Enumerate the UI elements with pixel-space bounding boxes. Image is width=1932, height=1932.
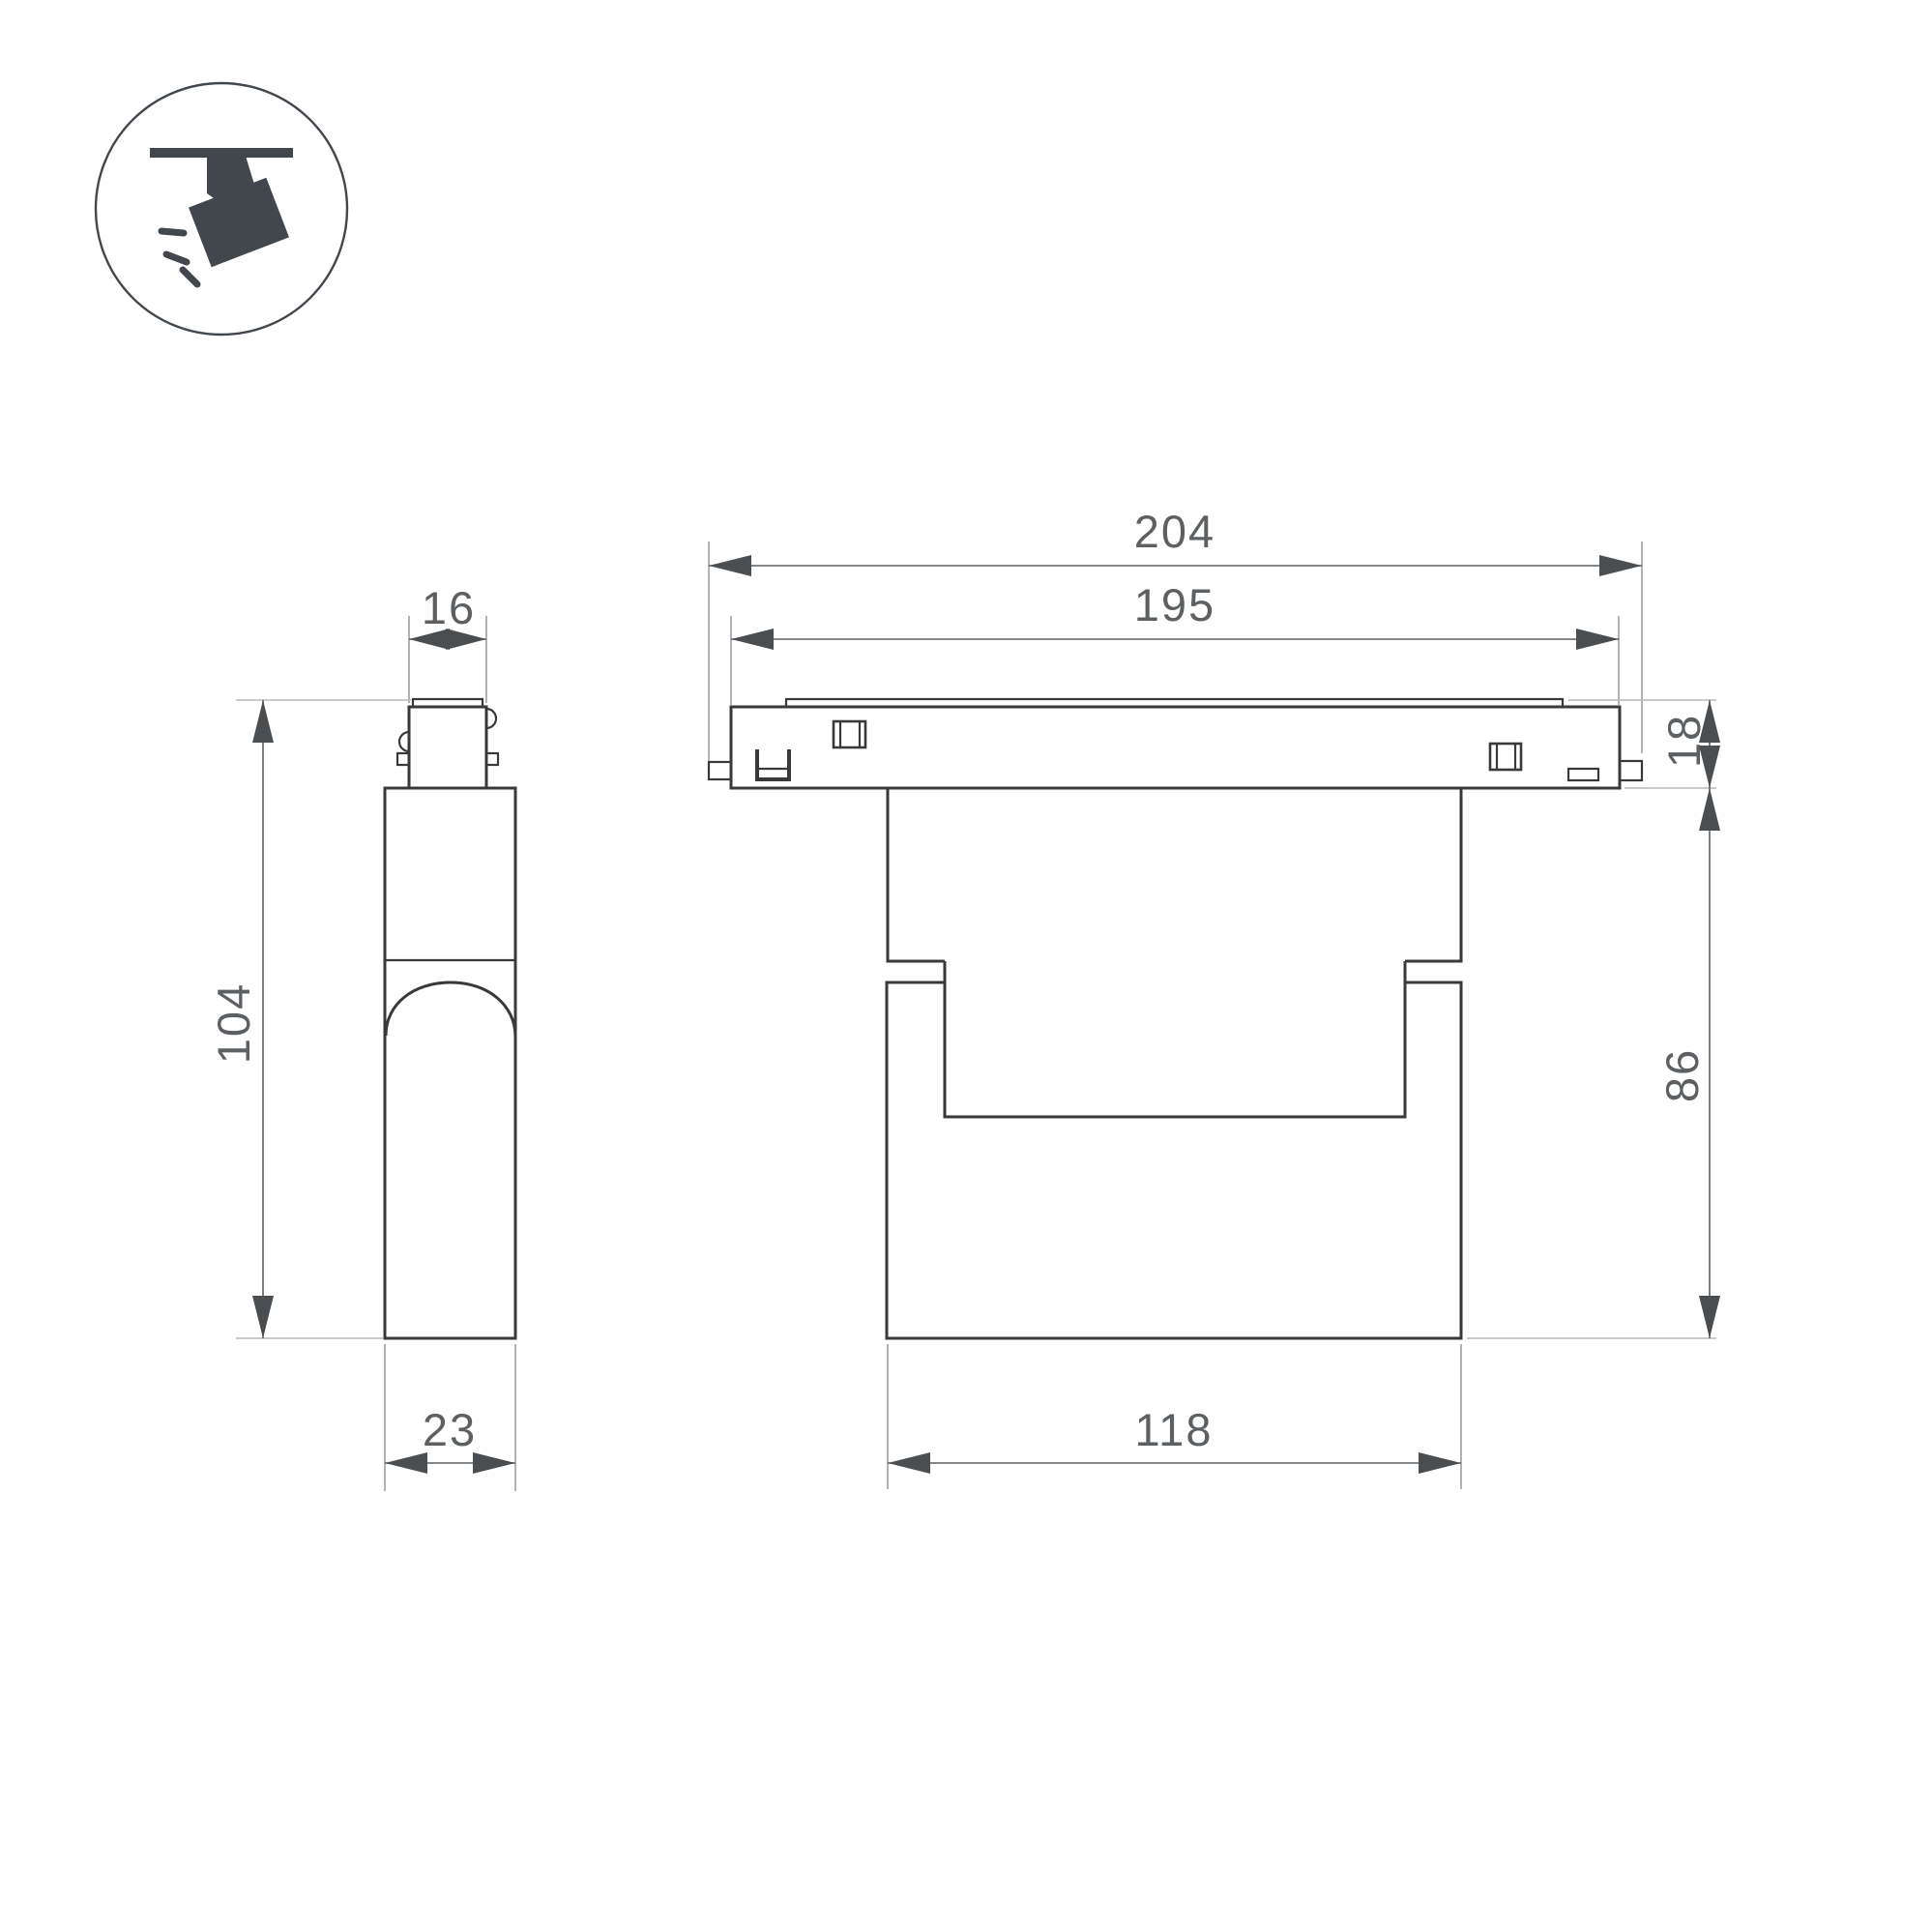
body-head-recess [945, 961, 1405, 1117]
dim-label-118: 118 [1135, 1404, 1214, 1455]
body-lower-outline [887, 982, 1461, 1338]
track-u-clip [757, 749, 789, 779]
dimension-track-height: 18 [1568, 700, 1720, 788]
arrow-right [1576, 629, 1619, 650]
dim-label-86: 86 [1656, 1048, 1708, 1102]
dim-label-204: 204 [1134, 506, 1215, 557]
arrow-right [1419, 1452, 1461, 1474]
arrow-left [709, 555, 751, 576]
dim-label-23: 23 [423, 1404, 477, 1455]
body-upper-left-edge [888, 788, 945, 961]
arrow-right [473, 1452, 515, 1474]
arrow-left [888, 1452, 930, 1474]
body-upper-right-edge [1405, 788, 1461, 961]
dim-label-16: 16 [422, 582, 476, 633]
track-spotlight-icon [96, 83, 347, 335]
side-body [385, 788, 515, 1338]
dim-label-18: 18 [1658, 714, 1710, 768]
arrow-down [252, 1296, 274, 1338]
side-adapter-left-ear [397, 753, 409, 765]
side-head-arch [386, 982, 515, 1037]
dimension-adapter-width: 16 [409, 582, 486, 703]
arrow-up [252, 700, 274, 743]
arrow-down [1699, 1296, 1720, 1338]
dimension-drawing: 204 195 16 104 23 18 [0, 0, 1932, 1932]
side-view [385, 699, 515, 1338]
side-adapter-body [409, 707, 486, 788]
track-right-screw [1490, 744, 1521, 770]
dimension-body-depth: 23 [385, 1344, 515, 1491]
arrow-left [731, 629, 774, 650]
icon-spot-head [189, 178, 289, 267]
track-right-pin [1620, 761, 1642, 780]
dimension-body-height: 86 [1467, 788, 1720, 1338]
side-adapter-right-ear [486, 753, 498, 765]
dimension-track-length: 204 [709, 506, 1642, 761]
dimension-body-width: 118 [888, 1344, 1461, 1489]
front-view [709, 699, 1642, 1338]
icon-light-rays [161, 231, 197, 284]
arrow-left [385, 1452, 427, 1474]
dim-label-104: 104 [208, 982, 259, 1064]
arrow-bowtie-lower [1699, 788, 1720, 831]
dimension-fixture-height: 104 [208, 700, 411, 1338]
track-right-slot [1568, 769, 1598, 780]
track-left-pin [709, 762, 731, 779]
dim-label-195: 195 [1134, 579, 1215, 630]
technical-drawing-page: 204 195 16 104 23 18 [0, 0, 1932, 1932]
dimension-track-window: 195 [731, 579, 1619, 705]
arrow-right [1599, 555, 1642, 576]
